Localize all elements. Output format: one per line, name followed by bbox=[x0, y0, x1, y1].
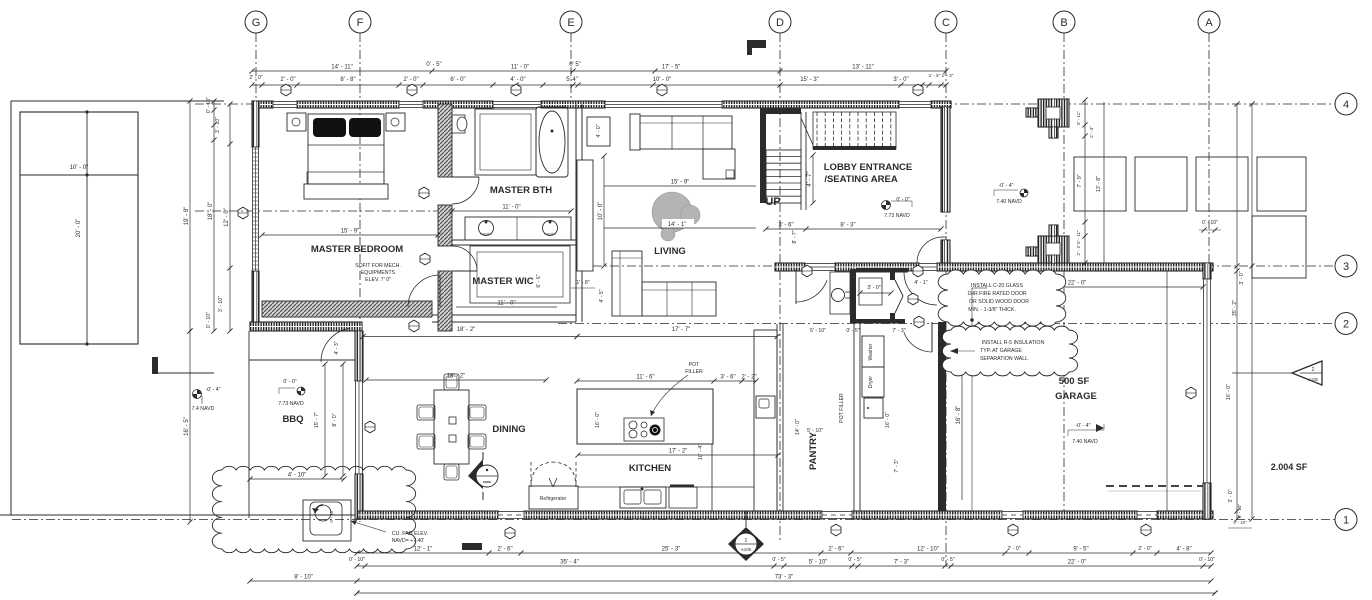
svg-text:OR SOLID WOOD DOOR: OR SOLID WOOD DOOR bbox=[969, 299, 1029, 305]
svg-text:22' - 0": 22' - 0" bbox=[1068, 559, 1087, 565]
svg-text:FILLER: FILLER bbox=[685, 369, 703, 375]
svg-text:3' - 0": 3' - 0" bbox=[1239, 271, 1245, 284]
svg-text:5' - 10": 5' - 10" bbox=[809, 559, 828, 565]
svg-text:10' - 0": 10' - 0" bbox=[653, 77, 672, 83]
svg-text:Refrigerator: Refrigerator bbox=[540, 496, 567, 502]
svg-text:10' - 0": 10' - 0" bbox=[598, 202, 604, 221]
svg-text:CU. PAD ELEV.: CU. PAD ELEV. bbox=[392, 531, 428, 537]
svg-text:0' - 11": 0' - 11" bbox=[1076, 111, 1081, 125]
svg-text:MIN. - 1-3/8" THICK.: MIN. - 1-3/8" THICK. bbox=[968, 307, 1016, 313]
svg-text:14' - 11": 14' - 11" bbox=[331, 64, 353, 70]
svg-text:11' - 6": 11' - 6" bbox=[636, 374, 654, 380]
svg-text:6' - 0": 6' - 0" bbox=[450, 77, 465, 83]
svg-text:7.40 NAVD: 7.40 NAVD bbox=[1072, 439, 1098, 445]
svg-text:4' - 3": 4' - 3" bbox=[334, 341, 340, 354]
svg-text:8' - 7": 8' - 7" bbox=[792, 230, 798, 243]
svg-text:A105: A105 bbox=[1308, 377, 1318, 382]
svg-text:0' - 5": 0' - 5" bbox=[426, 62, 441, 68]
svg-text:TYP. AT GARAGE: TYP. AT GARAGE bbox=[980, 348, 1022, 354]
svg-text:4' - 10": 4' - 10" bbox=[288, 472, 307, 478]
svg-text:0' - 5": 0' - 5" bbox=[941, 557, 954, 563]
svg-text:INSTALL R-5 INSULATION: INSTALL R-5 INSULATION bbox=[982, 340, 1045, 346]
svg-text:1' - 8": 1' - 8" bbox=[576, 280, 589, 286]
svg-text:2' - 6": 2' - 6" bbox=[828, 546, 843, 552]
svg-text:1HR FIRE RATED DOOR: 1HR FIRE RATED DOOR bbox=[967, 291, 1027, 297]
svg-text:11' - 0": 11' - 0" bbox=[511, 64, 529, 70]
svg-text:16' - 0": 16' - 0" bbox=[885, 412, 891, 428]
svg-text:10' - 4": 10' - 4" bbox=[698, 444, 704, 460]
svg-text:-0' - 4": -0' - 4" bbox=[999, 183, 1014, 189]
svg-text:EQUIPMENTS: EQUIPMENTS bbox=[361, 270, 396, 276]
svg-text:4' - 0": 4' - 0" bbox=[596, 124, 602, 137]
svg-text:4' - 8": 4' - 8" bbox=[1176, 546, 1191, 552]
svg-text:2: 2 bbox=[1312, 367, 1315, 373]
svg-text:2' - 6": 2' - 6" bbox=[497, 546, 512, 552]
svg-text:6' - 6": 6' - 6" bbox=[536, 274, 542, 287]
svg-text:16' - 5": 16' - 5" bbox=[184, 417, 190, 436]
svg-text:POT FILLER: POT FILLER bbox=[839, 393, 845, 423]
svg-text:12' - 10": 12' - 10" bbox=[917, 546, 939, 552]
svg-text:0' - 10": 0' - 10" bbox=[1202, 220, 1218, 226]
svg-text:PANTRY: PANTRY bbox=[808, 431, 819, 470]
svg-text:13' - 8": 13' - 8" bbox=[1096, 176, 1102, 192]
svg-text:12' - 1": 12' - 1" bbox=[414, 546, 433, 552]
svg-text:3' - 0": 3' - 0" bbox=[893, 77, 908, 83]
svg-text:7.73 NAVD: 7.73 NAVD bbox=[884, 213, 910, 219]
svg-text:4' - 5": 4' - 5" bbox=[599, 289, 605, 302]
svg-text:B: B bbox=[1060, 17, 1067, 29]
svg-text:0' - 10": 0' - 10" bbox=[1234, 520, 1248, 525]
svg-text:22' - 0": 22' - 0" bbox=[1068, 280, 1087, 286]
svg-text:MASTER BTH: MASTER BTH bbox=[490, 185, 552, 196]
svg-text:0' - 5": 0' - 5" bbox=[848, 557, 861, 563]
svg-text:17' - 5": 17' - 5" bbox=[662, 64, 681, 70]
svg-text:G: G bbox=[252, 17, 261, 29]
svg-text:1' - 5" 1' - 3": 1' - 5" 1' - 3" bbox=[929, 73, 954, 78]
svg-text:LOBBY ENTRANCE: LOBBY ENTRANCE bbox=[824, 162, 913, 173]
svg-text:A105: A105 bbox=[741, 547, 752, 552]
svg-text:UP: UP bbox=[765, 196, 780, 208]
svg-text:14' - 1": 14' - 1" bbox=[668, 222, 687, 228]
svg-text:0' - 10": 0' - 10" bbox=[349, 557, 365, 563]
svg-text:8' - 10": 8' - 10" bbox=[294, 574, 313, 580]
svg-text:18' - 2": 18' - 2" bbox=[457, 327, 476, 333]
svg-text:8' - 3": 8' - 3" bbox=[840, 222, 855, 228]
svg-text:F: F bbox=[357, 17, 364, 29]
svg-text:A: A bbox=[1205, 17, 1213, 29]
svg-text:9' - 5": 9' - 5" bbox=[1073, 546, 1088, 552]
svg-text:17' - 7": 17' - 7" bbox=[672, 327, 691, 333]
svg-text:8' - 0": 8' - 0" bbox=[332, 413, 338, 426]
svg-text:SOFIT FOR MECH.: SOFIT FOR MECH. bbox=[355, 263, 401, 269]
svg-text:35' - 2": 35' - 2" bbox=[1232, 300, 1238, 316]
svg-text:SEPARATION WALL: SEPARATION WALL bbox=[980, 356, 1028, 362]
svg-text:3' - 6": 3' - 6" bbox=[720, 374, 735, 380]
svg-text:0' 5": 0' 5" bbox=[569, 62, 581, 68]
svg-text:2' - 3": 2' - 3" bbox=[1089, 126, 1094, 138]
svg-text:LIVING: LIVING bbox=[654, 246, 686, 257]
svg-text:16' - 8": 16' - 8" bbox=[956, 406, 962, 425]
svg-text:4: 4 bbox=[1343, 99, 1349, 111]
svg-text:BBQ: BBQ bbox=[282, 414, 303, 425]
svg-text:7' - 3": 7' - 3" bbox=[894, 459, 900, 472]
svg-text:NAVD= +7.40': NAVD= +7.40' bbox=[392, 538, 425, 544]
svg-text:E: E bbox=[567, 17, 574, 29]
svg-text:35' - 4": 35' - 4" bbox=[560, 559, 579, 565]
svg-text:73' - 3": 73' - 3" bbox=[775, 574, 794, 580]
svg-text:Dryer: Dryer bbox=[868, 376, 874, 389]
svg-text:11' - 0": 11' - 0" bbox=[497, 300, 515, 306]
svg-text:7' - 9": 7' - 9" bbox=[1077, 174, 1083, 187]
svg-text:14' - 0": 14' - 0" bbox=[795, 419, 801, 435]
svg-text:D: D bbox=[776, 17, 784, 29]
svg-text:0' - 10": 0' - 10" bbox=[206, 312, 212, 328]
svg-text:15' - 3": 15' - 3" bbox=[800, 77, 819, 83]
svg-text:/SEATING AREA: /SEATING AREA bbox=[824, 174, 898, 185]
svg-text:2' - 0": 2' - 0" bbox=[280, 77, 295, 83]
svg-text:3' - 0": 3' - 0" bbox=[867, 285, 880, 291]
svg-text:3' - 10": 3' - 10" bbox=[215, 117, 221, 133]
svg-text:3: 3 bbox=[1343, 261, 1349, 273]
svg-text:3' - 6": 3' - 6" bbox=[778, 222, 793, 228]
svg-text:13' - 11": 13' - 11" bbox=[852, 64, 874, 70]
svg-text:0' - 10": 0' - 10" bbox=[329, 509, 334, 523]
svg-text:15' - 7": 15' - 7" bbox=[314, 412, 320, 428]
svg-text:1: 1 bbox=[745, 538, 748, 544]
svg-text:DINING: DINING bbox=[492, 424, 525, 435]
svg-text:MASTER BEDROOM: MASTER BEDROOM bbox=[311, 244, 403, 255]
svg-text:0' - 10": 0' - 10" bbox=[1237, 504, 1242, 519]
svg-text:ELEV. 7' 0": ELEV. 7' 0" bbox=[365, 277, 391, 283]
svg-text:16' - 0": 16' - 0" bbox=[1226, 384, 1232, 400]
svg-text:1: 1 bbox=[1343, 515, 1349, 527]
svg-text:3' - 0": 3' - 0" bbox=[1228, 489, 1234, 502]
svg-text:2' - 0": 2' - 0" bbox=[1007, 546, 1020, 552]
svg-text:C: C bbox=[942, 17, 950, 29]
svg-text:0' - 10": 0' - 10" bbox=[206, 97, 212, 113]
svg-text:8' - 8": 8' - 8" bbox=[340, 77, 355, 83]
svg-text:4' - 7": 4' - 7" bbox=[807, 171, 813, 186]
svg-text:16' - 0": 16' - 0" bbox=[595, 412, 601, 428]
svg-text:4' - 1": 4' - 1" bbox=[914, 280, 927, 286]
svg-text:0' - 0": 0' - 0" bbox=[283, 379, 296, 385]
svg-text:15' - 9": 15' - 9" bbox=[671, 179, 690, 185]
svg-text:0' - 10": 0' - 10" bbox=[1199, 557, 1215, 563]
svg-text:3' - 10": 3' - 10" bbox=[218, 296, 224, 312]
svg-text:7.4 NAVD: 7.4 NAVD bbox=[192, 406, 215, 412]
svg-text:2.004 SF: 2.004 SF bbox=[1271, 462, 1308, 472]
svg-text:2' - 2' 0' - 11": 2' - 2' 0' - 11" bbox=[1076, 230, 1081, 255]
svg-text:-0' - 4": -0' - 4" bbox=[206, 387, 221, 393]
svg-text:10' - 0": 10' - 0" bbox=[70, 165, 89, 171]
svg-text:7.73 NAVD: 7.73 NAVD bbox=[278, 401, 304, 407]
svg-text:15' - 9": 15' - 9" bbox=[341, 228, 360, 234]
svg-text:20' - 0": 20' - 0" bbox=[76, 219, 82, 238]
svg-text:7.40 NAVD: 7.40 NAVD bbox=[996, 199, 1022, 205]
svg-text:0' - 5": 0' - 5" bbox=[846, 328, 859, 334]
svg-text:0' - 0": 0' - 0" bbox=[896, 197, 909, 203]
svg-text:Washer: Washer bbox=[868, 343, 874, 360]
svg-text:0' - 5": 0' - 5" bbox=[772, 557, 785, 563]
svg-text:-0' - 4": -0' - 4" bbox=[1076, 423, 1091, 429]
svg-text:17' - 2": 17' - 2" bbox=[669, 448, 688, 454]
svg-text:5' - 10": 5' - 10" bbox=[807, 428, 823, 434]
svg-text:MASTER WIC: MASTER WIC bbox=[472, 276, 533, 287]
svg-text:4' - 0": 4' - 0" bbox=[510, 77, 525, 83]
svg-text:7' - 3": 7' - 3" bbox=[894, 559, 909, 565]
svg-text:2' - 0": 2' - 0" bbox=[1138, 546, 1151, 552]
svg-text:11' - 0": 11' - 0" bbox=[502, 204, 520, 210]
svg-text:2: 2 bbox=[1343, 319, 1349, 331]
svg-text:5' - 10": 5' - 10" bbox=[810, 328, 826, 334]
svg-text:25' - 3": 25' - 3" bbox=[662, 546, 681, 552]
svg-text:2' - 0": 2' - 0" bbox=[249, 75, 262, 81]
svg-text:19' - 8": 19' - 8" bbox=[184, 207, 190, 226]
svg-text:500 SF: 500 SF bbox=[1059, 376, 1090, 387]
svg-text:GARAGE: GARAGE bbox=[1055, 391, 1097, 402]
svg-text:2' - 0": 2' - 0" bbox=[403, 77, 418, 83]
svg-text:POT: POT bbox=[689, 362, 700, 368]
svg-text:KITCHEN: KITCHEN bbox=[629, 463, 671, 474]
svg-text:5' 4": 5' 4" bbox=[566, 77, 578, 83]
